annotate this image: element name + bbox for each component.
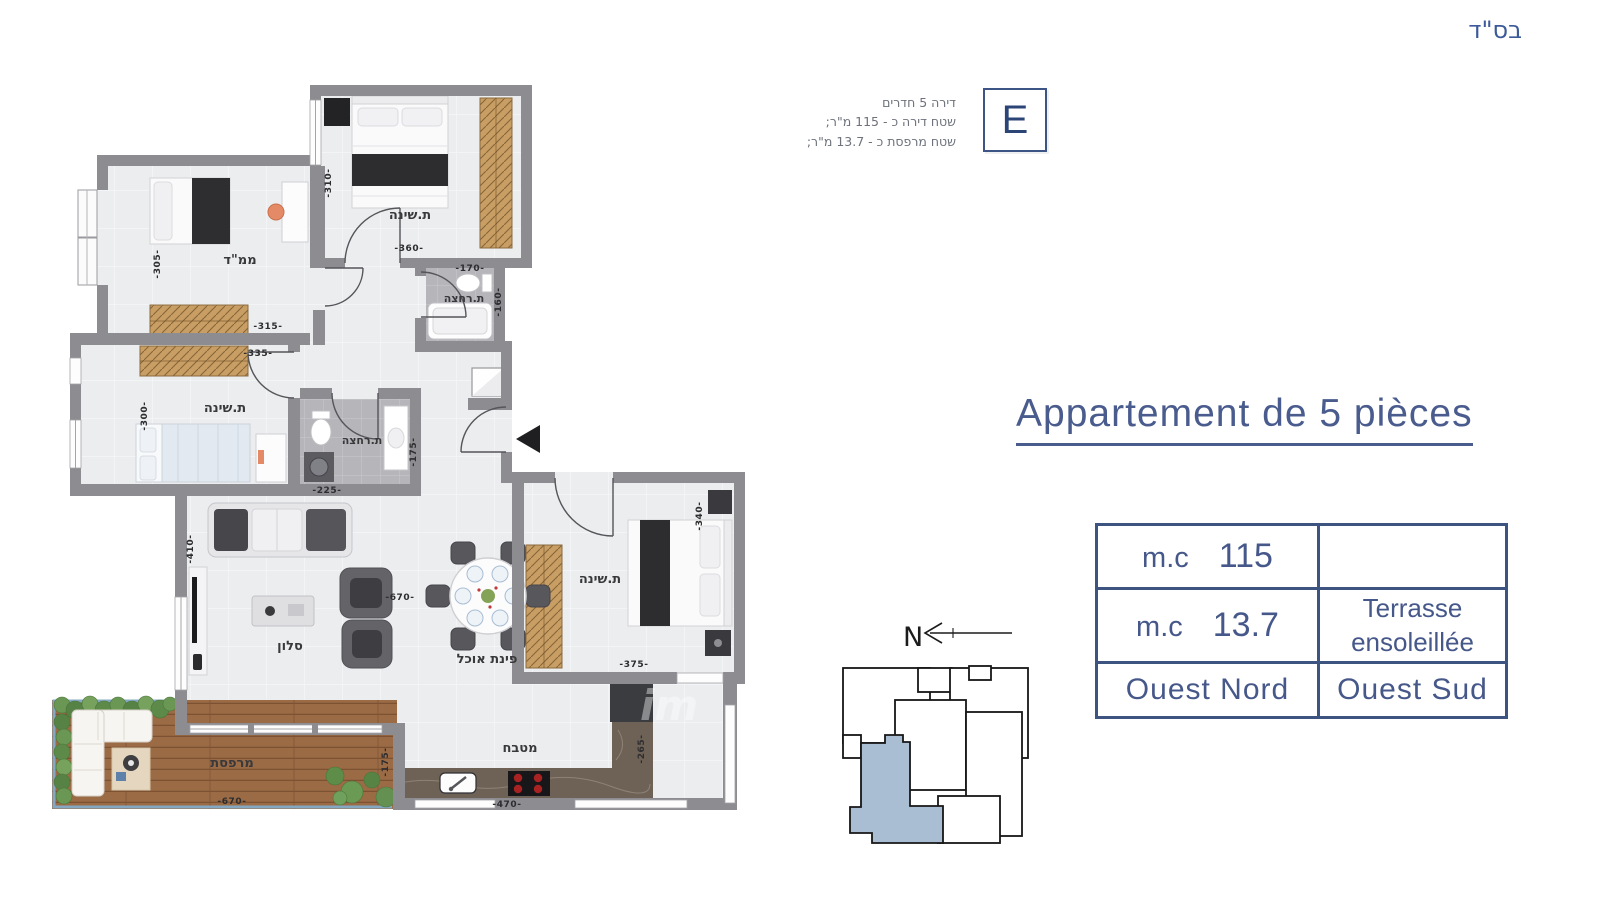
keyplan: N bbox=[820, 595, 1035, 850]
label-bedroom-2: ת.שינה bbox=[204, 401, 246, 416]
label-kitchen: מטבח bbox=[502, 741, 537, 756]
dim-305: -305- bbox=[153, 249, 163, 278]
terrace-value: 13.7 bbox=[1213, 606, 1279, 645]
dim-160: -160- bbox=[494, 287, 504, 316]
bsd-blessing-text: בס"ד bbox=[1468, 16, 1522, 44]
tv-screen bbox=[192, 577, 197, 643]
label-salon: סלון bbox=[277, 639, 303, 654]
label-bedroom-1: ת.שינה bbox=[389, 208, 431, 223]
surface-unit: m.c bbox=[1142, 542, 1189, 575]
terrace-label-line2: ensoleillée bbox=[1320, 626, 1505, 660]
unit-letter-badge: E bbox=[983, 88, 1047, 152]
bedroom-3-nightstand-1 bbox=[708, 490, 732, 514]
label-dining: פינת אוכל bbox=[457, 652, 518, 667]
apartment-info-block: דירה 5 חדרים שטח דירה כ - 115 מ"ר; שטח מ… bbox=[790, 93, 956, 151]
surface-right-cell bbox=[1319, 525, 1507, 589]
label-terrace: מרפסת bbox=[210, 756, 254, 771]
spec-row-surface: m.c 115 bbox=[1097, 525, 1507, 589]
terrace-pillow bbox=[116, 772, 126, 781]
mamad-chair bbox=[268, 204, 284, 220]
spec-row-orientation: Ouest Nord Ouest Sud bbox=[1097, 663, 1507, 718]
terrace-label-line1: Terrasse bbox=[1320, 592, 1505, 626]
dim-360: -360- bbox=[394, 244, 423, 254]
dim-225: -225- bbox=[312, 486, 341, 496]
keyplan-building bbox=[843, 666, 1028, 843]
dim-300: -300- bbox=[140, 401, 150, 430]
entrance-arrow bbox=[516, 425, 540, 453]
surface-value: 115 bbox=[1219, 537, 1273, 576]
toilet-1 bbox=[456, 274, 480, 292]
label-bathroom-2: ת.רחצה bbox=[342, 434, 383, 447]
apartment-info-line-2: שטח דירה כ - 115 מ"ר; bbox=[790, 112, 956, 131]
dim-175-terrace: -175- bbox=[381, 747, 391, 776]
floorplan: im ת.שינה ממ"ד ת.רחצה ת.שינה ת.רחצה סלון… bbox=[40, 78, 752, 818]
label-bedroom-3: ת.שינה bbox=[579, 572, 621, 587]
watermark: im bbox=[640, 681, 698, 730]
toilet-2 bbox=[311, 419, 331, 445]
dim-470: -470- bbox=[492, 800, 521, 810]
spec-table: m.c 115 m.c 13.7 Terrasse ensoleillée Ou… bbox=[1095, 523, 1508, 719]
dim-310: -310- bbox=[324, 168, 334, 197]
compass: N bbox=[903, 622, 1012, 653]
shaft-box bbox=[472, 368, 504, 396]
dim-375: -375- bbox=[619, 660, 648, 670]
orientation-west-north: Ouest Nord bbox=[1097, 663, 1319, 718]
terrace bbox=[52, 696, 397, 809]
dim-315: -315- bbox=[253, 322, 282, 332]
dim-410: -410- bbox=[186, 534, 196, 563]
apartment-info-line-3: שטח מרפסת כ - 13.7 מ"ר; bbox=[790, 132, 956, 151]
unit-letter: E bbox=[1002, 98, 1029, 143]
label-mamad: ממ"ד bbox=[223, 253, 256, 268]
dim-170: -170- bbox=[455, 264, 484, 274]
compass-north-label: N bbox=[903, 622, 923, 653]
coffee-table bbox=[252, 596, 314, 626]
bedroom-1-dresser bbox=[324, 98, 350, 126]
dim-265: -265- bbox=[637, 734, 647, 763]
dim-670-terrace: -670- bbox=[217, 797, 246, 807]
orientation-west-south: Ouest Sud bbox=[1319, 663, 1507, 718]
terrace-unit: m.c bbox=[1136, 611, 1183, 644]
mamad-desk bbox=[282, 182, 308, 242]
dim-340: -340- bbox=[695, 501, 705, 530]
mamad-furniture bbox=[150, 178, 308, 244]
dim-335: -335- bbox=[243, 349, 272, 359]
kitchen-stove bbox=[508, 771, 550, 796]
apartment-info-line-1: דירה 5 חדרים bbox=[790, 93, 956, 112]
spec-row-terrace: m.c 13.7 Terrasse ensoleillée bbox=[1097, 589, 1507, 663]
dim-175-bath: -175- bbox=[409, 437, 419, 466]
terrace-outdoor-sofa bbox=[72, 710, 152, 796]
dim-670-salon: -670- bbox=[385, 593, 414, 603]
label-bathroom-1: ת.רחצה bbox=[444, 292, 485, 305]
page-title: Appartement de 5 pièces bbox=[1016, 392, 1473, 446]
